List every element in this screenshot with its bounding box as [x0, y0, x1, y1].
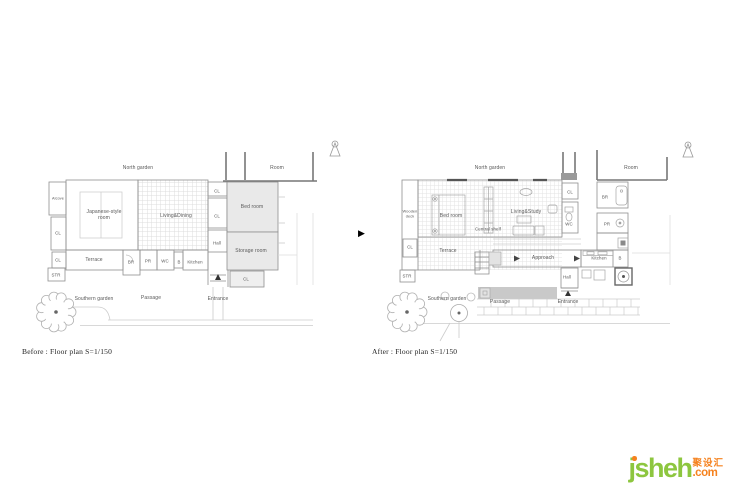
tree-icon	[388, 292, 427, 332]
label-str: STR	[402, 273, 411, 278]
label-cl: CL	[214, 213, 220, 218]
label-pr: PR	[604, 221, 610, 226]
page: North garden Room Alcove Japanese-style …	[0, 0, 730, 486]
watermark: jsheh 聚设汇 .com	[628, 458, 724, 479]
label-approach: Approach	[532, 255, 554, 261]
tree-icon	[37, 292, 76, 332]
label-north-garden: North garden	[123, 165, 153, 171]
label-room: Room	[624, 165, 638, 171]
site-lines	[632, 215, 670, 285]
label-b: B	[618, 255, 621, 260]
north-arrow-icon	[330, 141, 340, 156]
label-passage: Passage	[490, 299, 510, 305]
label-wc: WC	[565, 221, 573, 226]
label-room: Room	[270, 165, 284, 171]
caption-before: Before : Floor plan S=1/150	[22, 347, 112, 356]
label-wooden-deck: Wooden deck	[403, 209, 418, 218]
label-br: BR	[128, 259, 134, 264]
label-living-dining: Living&Dining	[160, 213, 192, 219]
label-cl: CL	[407, 244, 413, 249]
label-terrace: Terrace	[85, 257, 102, 263]
wall-block	[561, 173, 577, 180]
site-lines	[278, 213, 313, 285]
label-b: B	[177, 259, 180, 264]
label-kitchen: Kitchen	[591, 255, 606, 260]
label-bed-room: Bed room	[241, 204, 263, 210]
label-wc: WC	[161, 258, 169, 263]
watermark-brand: jsheh	[628, 458, 691, 479]
label-entrance: Entrance	[208, 296, 229, 302]
label-hall: Hall	[563, 274, 571, 279]
room-building-walls	[563, 150, 667, 180]
label-terrace: Terrace	[439, 248, 456, 254]
label-cl: CL	[243, 276, 249, 281]
label-alcove: Alcove	[52, 197, 64, 202]
floor-plan-before: North garden Room Alcove Japanese-style …	[20, 135, 355, 347]
label-storage-room: Storage room	[235, 248, 267, 254]
label-kitchen: Kitchen	[187, 259, 202, 264]
label-cl: CL	[567, 189, 573, 194]
before-after-arrow-icon: ▶	[358, 229, 365, 238]
furniture	[432, 186, 629, 282]
label-br: BR	[602, 194, 608, 199]
road-lines	[70, 287, 313, 326]
label-cl: CL	[55, 230, 61, 235]
label-passage: Passage	[141, 295, 161, 301]
label-north-garden: North garden	[475, 165, 505, 171]
interior-lines	[493, 239, 581, 244]
label-central-shelf: Central shelf	[475, 226, 501, 231]
approach-arrow-icon	[514, 256, 520, 262]
label-pr: PR	[145, 258, 151, 263]
walls	[48, 180, 278, 287]
label-living-study: Living&Study	[511, 209, 541, 215]
label-str: STR	[51, 272, 60, 277]
label-southern-garden: Southern garden	[428, 296, 467, 302]
label-cl: CL	[214, 188, 220, 193]
label-hall: Hall	[213, 240, 221, 245]
approach-arrow-icon	[574, 256, 580, 262]
floor-plan-after-drawing	[370, 135, 705, 347]
caption-after: After : Floor plan S=1/150	[372, 347, 457, 356]
road-lines	[420, 323, 670, 341]
label-japanese-room: Japanese-style room	[86, 209, 121, 221]
floor-plan-before-drawing	[20, 135, 355, 347]
label-entrance: Entrance	[558, 299, 579, 305]
north-arrow-icon	[683, 142, 693, 157]
watermark-right: 聚设汇 .com	[692, 459, 724, 479]
label-cl: CL	[55, 257, 61, 262]
watermark-tld: .com	[692, 468, 717, 479]
floor-plan-after: North garden Room Wooden deck Bed room C…	[370, 135, 705, 347]
watermark-j-dot	[632, 456, 637, 461]
label-bed-room: Bed room	[440, 213, 462, 219]
label-southern-garden: Southern garden	[75, 296, 114, 302]
